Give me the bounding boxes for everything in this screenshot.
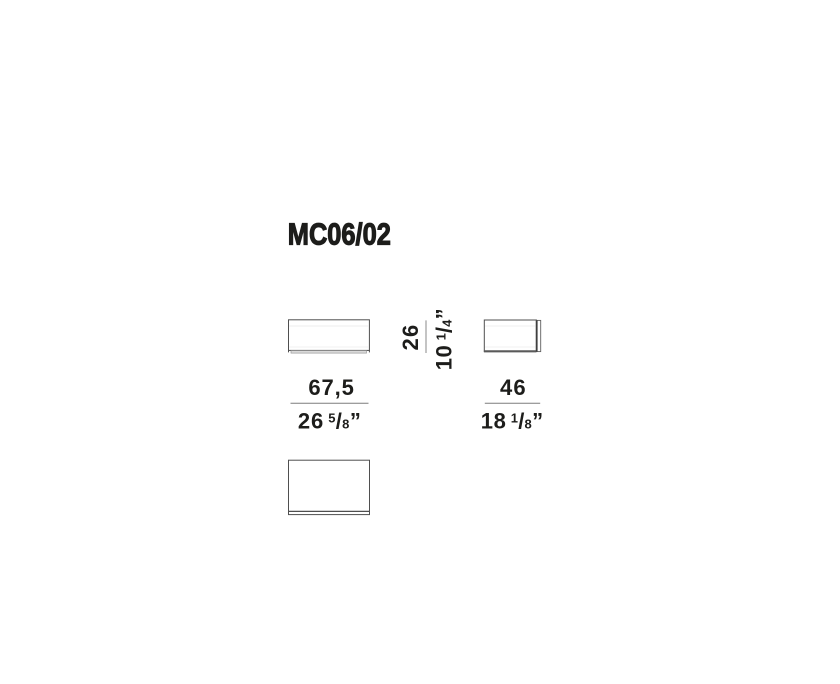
svg-text:46: 46: [500, 375, 527, 400]
svg-text:67,5: 67,5: [308, 375, 354, 400]
svg-text:MC06/02: MC06/02: [288, 217, 391, 252]
svg-text:26: 26: [398, 324, 423, 351]
